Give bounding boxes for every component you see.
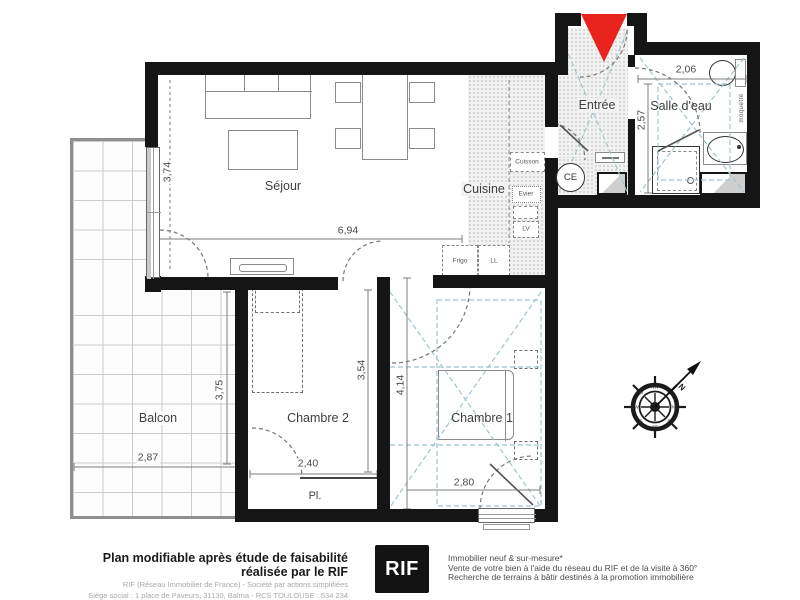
window-chambre1	[478, 508, 535, 523]
window-sejour-balcon	[146, 147, 160, 278]
compass-point: NW	[651, 385, 659, 390]
room-label-chambre2: Chambre 2	[287, 411, 349, 425]
footer-service-3: Recherche de terrains à bâtir destinés à…	[448, 573, 697, 583]
room-label-balcon: Balcon	[136, 411, 180, 425]
label-frigo: Frigo	[453, 258, 468, 265]
room-label-placard: Pl.	[309, 490, 322, 502]
footer-tagline: Plan modifiable après étude de faisabili…	[86, 551, 348, 579]
door-leaves	[490, 125, 699, 505]
placard-partition	[300, 477, 377, 479]
wall	[235, 288, 248, 522]
dim-balcon-width: 2,87	[136, 453, 160, 464]
wall	[545, 75, 558, 127]
dimension-lines	[74, 75, 746, 509]
label-ll: LL	[490, 258, 497, 265]
label-moquette: moquette	[739, 93, 745, 122]
rif-logo-text: RIF	[385, 558, 419, 581]
label-cuisson: Cuisson	[515, 159, 538, 166]
wall	[555, 13, 581, 26]
dim-chambre1-width: 2,80	[452, 478, 476, 489]
wall	[377, 277, 390, 522]
wall	[634, 42, 760, 55]
footer-services-block: Immobilier neuf & sur-mesure* Vente de v…	[448, 554, 697, 583]
dim-sejour-width: 6,94	[336, 226, 360, 237]
room-label-chambre1: Chambre 1	[451, 411, 513, 425]
footer-legal-2: Siège social : 1 place de Paveurs, 31130…	[86, 592, 348, 600]
dim-sdb-height: 2,57	[637, 108, 648, 132]
dim-sejour-height: 3,74	[163, 160, 174, 184]
room-label-entree: Entrée	[577, 98, 618, 112]
room-label-salle-deau: Salle d'eau	[650, 99, 711, 113]
compass-point: W	[639, 391, 644, 396]
compass-point: SW	[631, 405, 639, 410]
ce-label: CE	[564, 172, 577, 183]
compass-point: NE	[672, 405, 678, 410]
floor-plan-page: N NE E SE S SW W NW N	[0, 0, 800, 600]
dim-balcon-height: 3,75	[215, 378, 226, 402]
wall	[628, 119, 635, 195]
footer-left-block: Plan modifiable après étude de faisabili…	[86, 551, 348, 600]
wall	[747, 42, 760, 208]
label-evier: Evier	[519, 191, 534, 198]
entrance-arrow-icon	[581, 14, 627, 62]
wall	[145, 62, 158, 147]
compass-point: E	[667, 419, 670, 424]
dim-chambre2-width: 2,40	[296, 459, 320, 470]
window-sill	[483, 524, 530, 530]
label-lv: LV	[522, 226, 529, 233]
compass-rose: N NE E SE S SW W NW N	[624, 361, 701, 438]
wall	[628, 55, 635, 67]
dim-chambre1-height: 4,14	[396, 373, 407, 397]
wall	[158, 277, 338, 290]
plan-linework: N NE E SE S SW W NW N	[0, 0, 800, 545]
compass-point: S	[639, 419, 642, 424]
compass-point: SE	[652, 425, 658, 430]
room-label-sejour: Séjour	[265, 179, 301, 193]
footer-legal-1: RIF (Réseau Immobilier de France) - Soci…	[86, 581, 348, 590]
water-heater: CE	[556, 163, 585, 192]
wall	[545, 195, 760, 208]
wall	[145, 62, 568, 75]
room-label-cuisine: Cuisine	[461, 182, 507, 196]
dim-sdb-width: 2,06	[674, 65, 698, 76]
wall	[433, 275, 558, 288]
dim-chambre2-height: 3,54	[357, 358, 368, 382]
rif-logo: RIF	[375, 545, 429, 593]
wall	[545, 208, 558, 522]
